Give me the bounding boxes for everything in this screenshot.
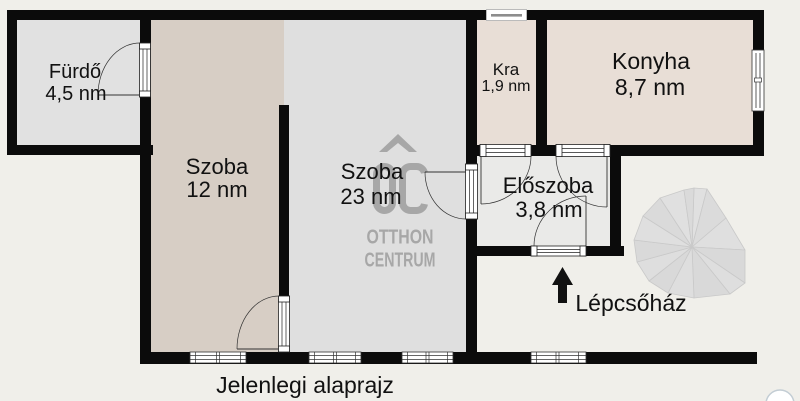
svg-text:4,5 nm: 4,5 nm xyxy=(45,83,106,105)
svg-text:Kra: Kra xyxy=(493,60,520,79)
svg-text:Fürdő: Fürdő xyxy=(49,61,101,83)
svg-text:1,9 nm: 1,9 nm xyxy=(482,78,531,95)
svg-text:OTTHON: OTTHON xyxy=(367,227,434,249)
svg-text:Szoba: Szoba xyxy=(341,159,404,184)
svg-text:23 nm: 23 nm xyxy=(340,184,401,209)
svg-text:Konyha: Konyha xyxy=(612,48,690,74)
svg-text:Előszoba: Előszoba xyxy=(503,173,594,198)
svg-text:Szoba: Szoba xyxy=(186,154,249,179)
svg-text:CENTRUM: CENTRUM xyxy=(365,250,436,272)
svg-text:3,8 nm: 3,8 nm xyxy=(515,197,582,222)
svg-text:8,7 nm: 8,7 nm xyxy=(615,74,685,100)
svg-text:Jelenlegi alaprajz: Jelenlegi alaprajz xyxy=(216,372,394,398)
svg-text:12 nm: 12 nm xyxy=(186,177,247,202)
svg-text:Lépcsőház: Lépcsőház xyxy=(575,290,686,316)
